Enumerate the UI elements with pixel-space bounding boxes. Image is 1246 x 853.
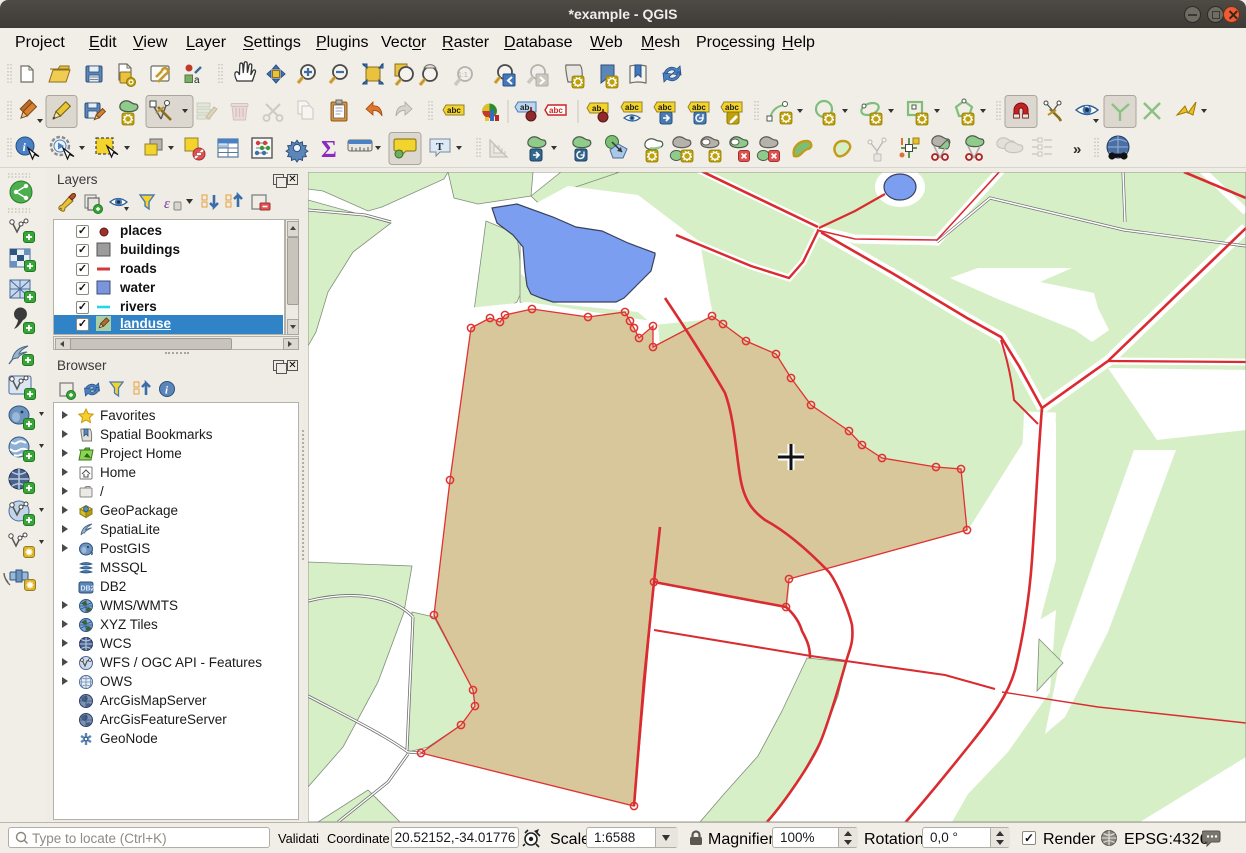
- svg-text:DB2: DB2: [81, 586, 95, 593]
- svg-text:ε: ε: [164, 196, 170, 212]
- svg-text:a: a: [194, 75, 200, 86]
- svg-text:abc: abc: [549, 106, 563, 115]
- svg-text:T: T: [436, 141, 444, 153]
- svg-text:Σ: Σ: [321, 137, 337, 163]
- svg-text:ab: ab: [520, 103, 529, 112]
- svg-text:»: »: [1073, 141, 1081, 158]
- svg-text:1:1: 1:1: [458, 72, 468, 79]
